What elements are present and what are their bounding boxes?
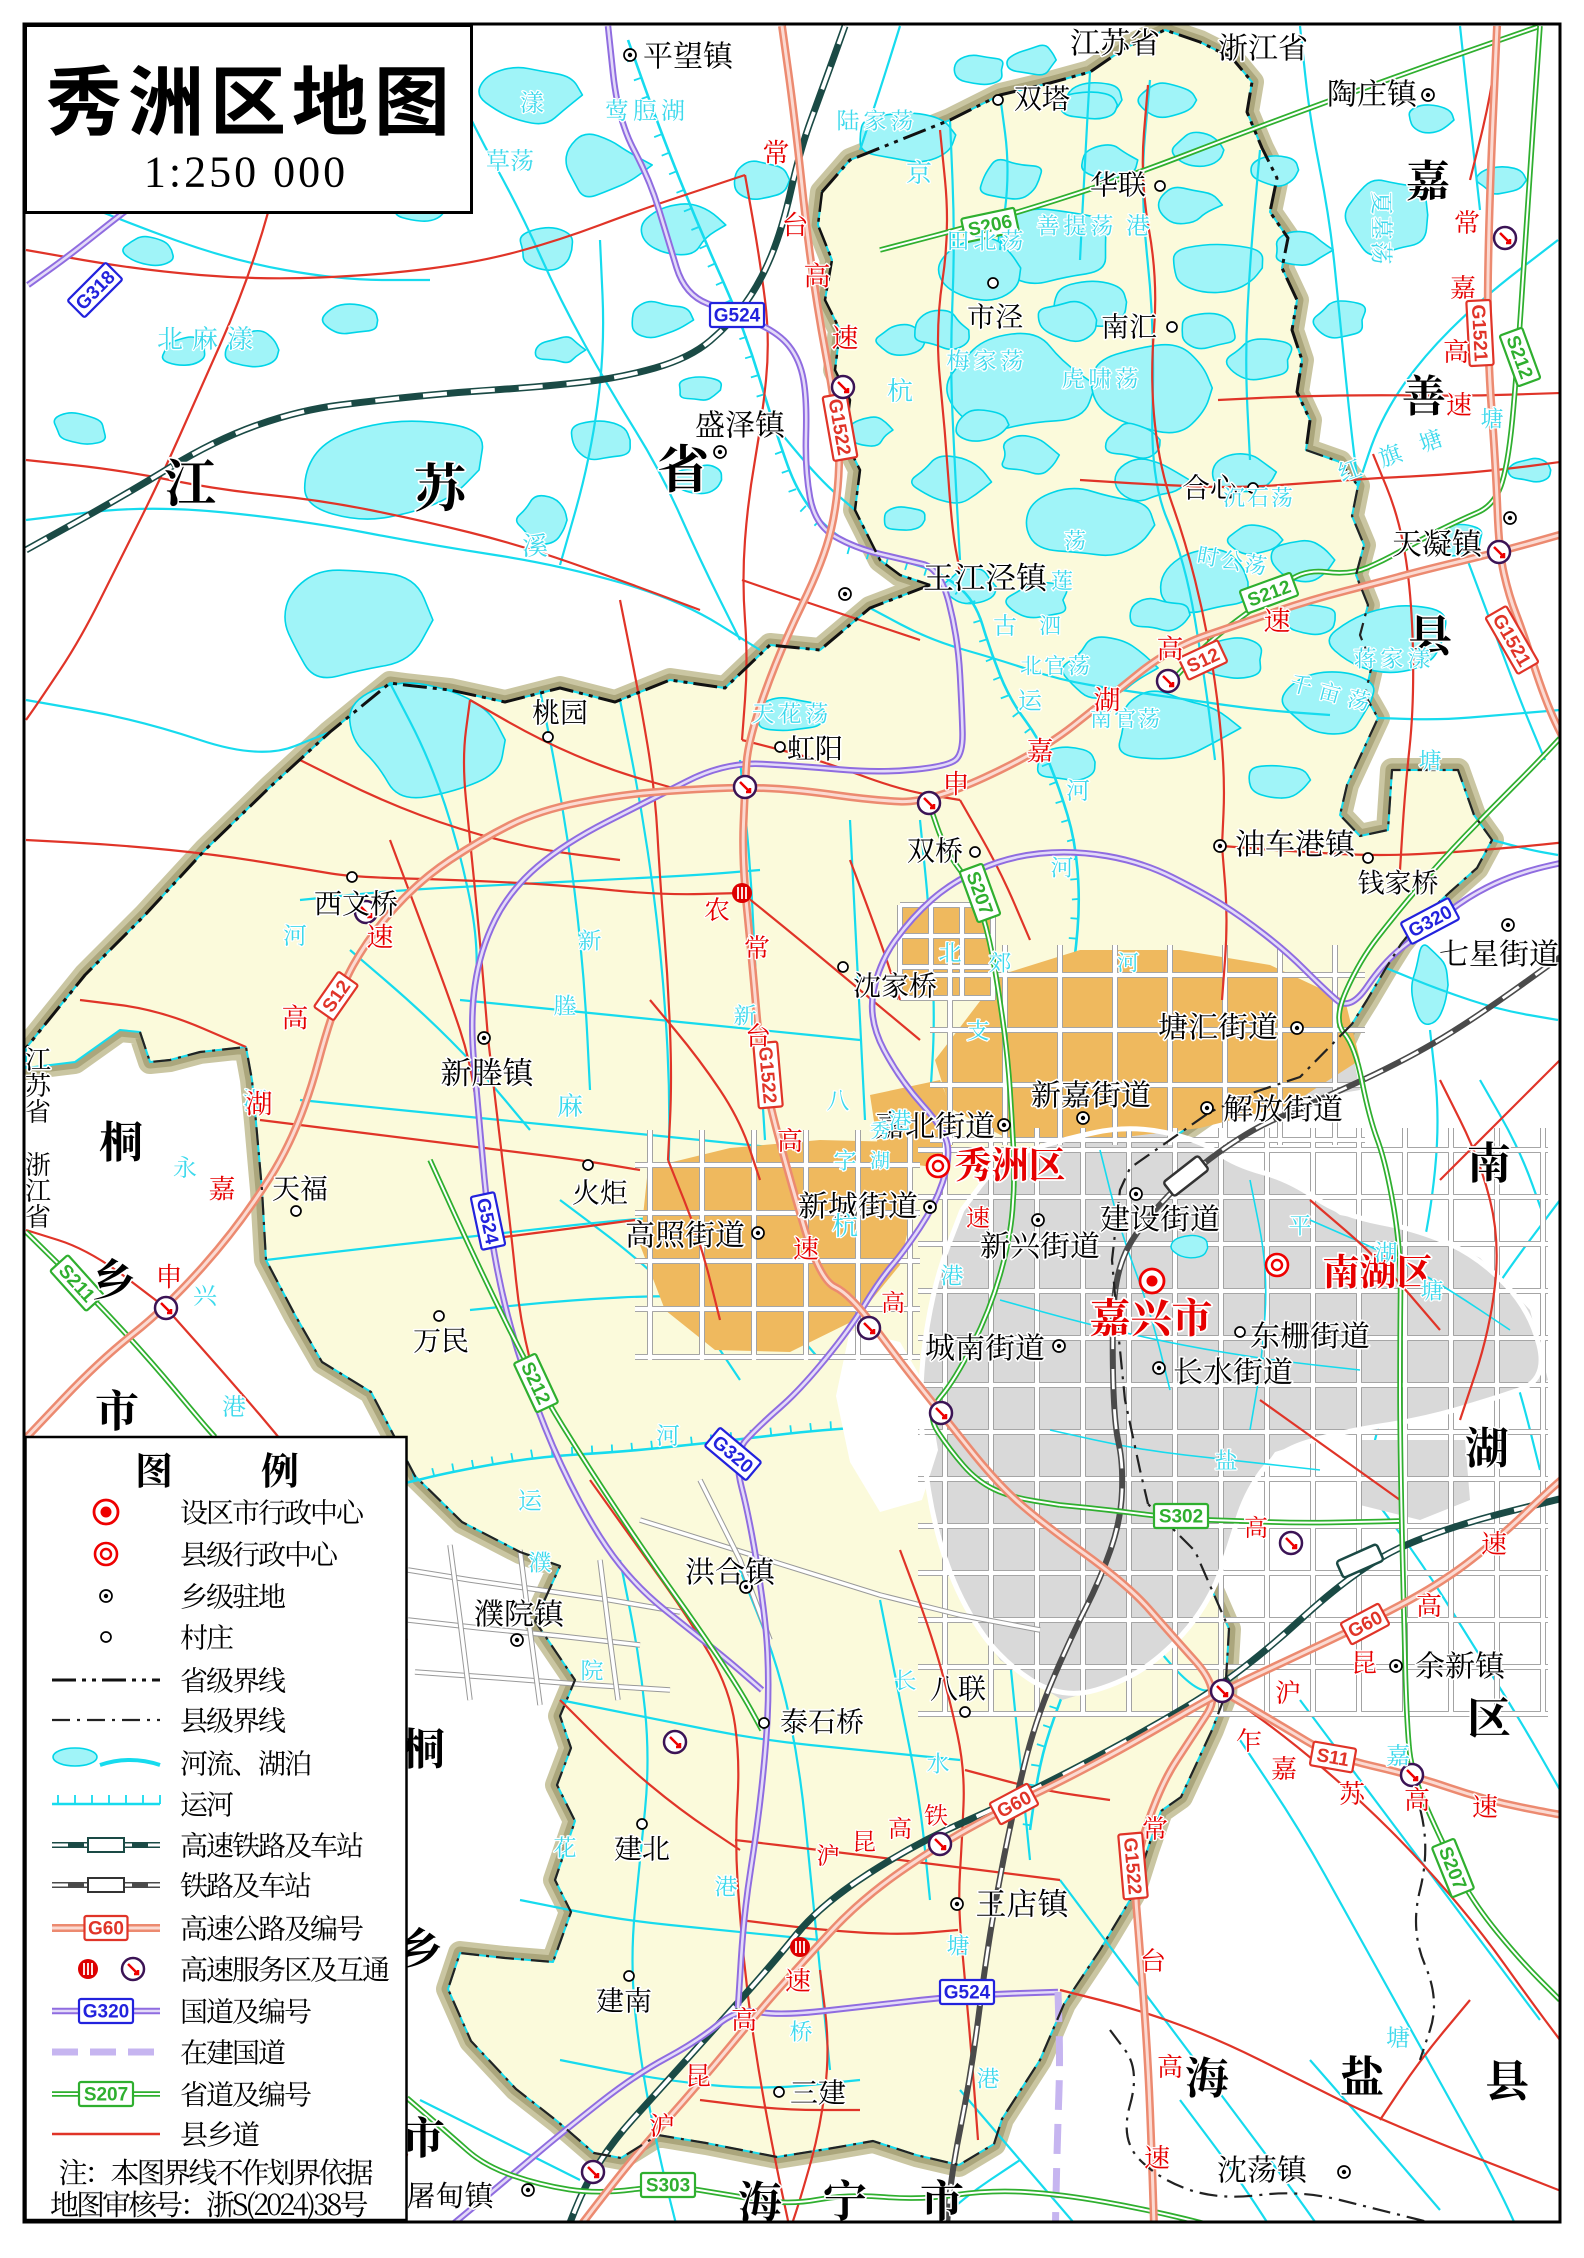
svg-text:S207: S207 [84,2085,128,2106]
svg-text:G1521: G1521 [1467,304,1491,362]
svg-text:G320: G320 [83,2002,129,2023]
svg-text:1:250 000: 1:250 000 [144,147,348,196]
svg-text:G524: G524 [714,306,761,327]
svg-text:S302: S302 [1159,1507,1203,1528]
svg-text:S303: S303 [646,2176,690,2197]
svg-text:G60: G60 [88,1919,124,1940]
svg-text:G524: G524 [944,1983,991,2004]
